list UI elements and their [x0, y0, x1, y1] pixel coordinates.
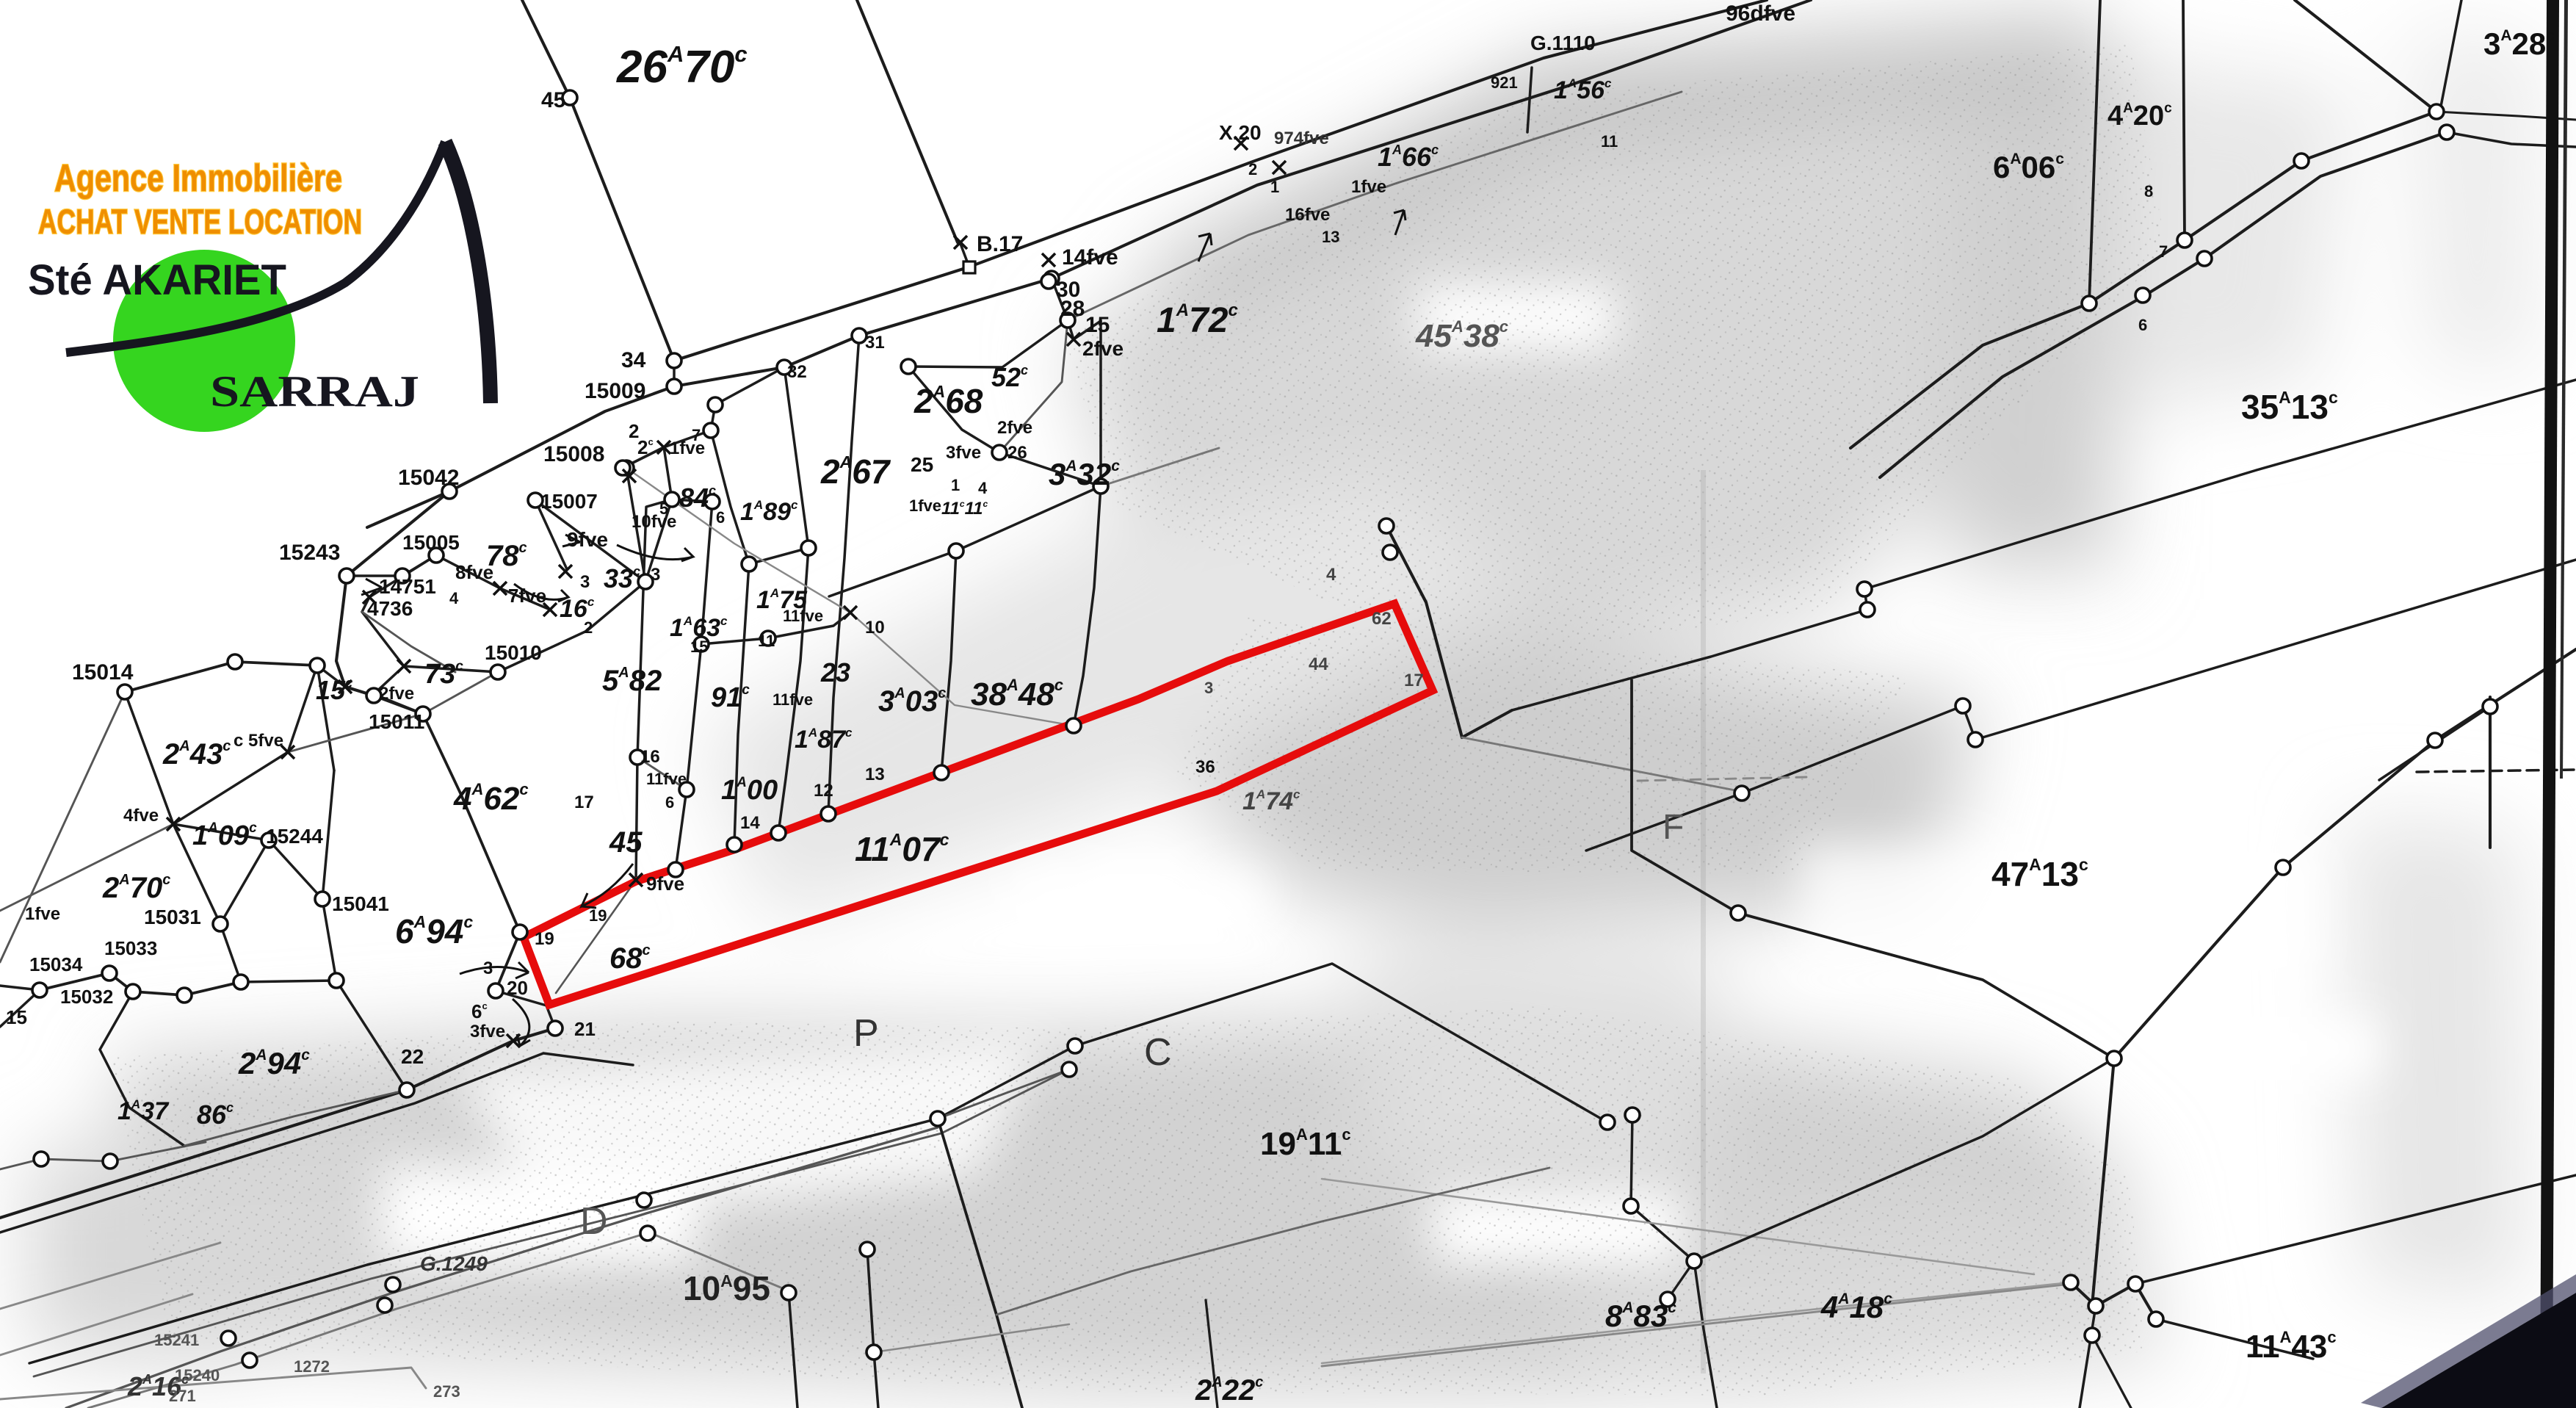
- svg-text:31: 31: [865, 333, 885, 353]
- svg-text:2A70c: 2A70c: [102, 872, 170, 904]
- svg-text:14fve: 14fve: [1062, 245, 1118, 270]
- svg-text:1: 1: [1270, 178, 1279, 196]
- svg-text:1A87c: 1A87c: [795, 726, 853, 754]
- svg-text:2: 2: [584, 618, 593, 637]
- svg-text:15032: 15032: [60, 986, 113, 1008]
- svg-text:2A67: 2A67: [820, 452, 891, 491]
- svg-text:D: D: [580, 1200, 608, 1243]
- svg-text:4736: 4736: [367, 597, 413, 620]
- svg-text:1: 1: [951, 476, 960, 494]
- svg-text:15010: 15010: [485, 641, 542, 664]
- svg-text:23: 23: [820, 657, 850, 687]
- svg-text:26: 26: [1007, 443, 1027, 463]
- svg-text:2A68: 2A68: [913, 382, 983, 420]
- svg-text:4fve: 4fve: [123, 806, 159, 826]
- svg-text:4: 4: [1326, 565, 1336, 585]
- svg-text:15034: 15034: [29, 953, 83, 975]
- svg-text:11: 11: [758, 632, 775, 650]
- svg-text:7: 7: [692, 426, 701, 444]
- svg-text:4: 4: [449, 589, 459, 607]
- svg-text:7fve: 7fve: [508, 585, 546, 607]
- svg-text:7: 7: [2159, 242, 2168, 261]
- svg-text:17: 17: [574, 793, 594, 812]
- svg-text:15007: 15007: [540, 490, 598, 513]
- svg-text:1A89c: 1A89c: [740, 498, 798, 526]
- svg-text:B.17: B.17: [977, 232, 1023, 256]
- svg-text:Agence Immobilière: Agence Immobilière: [54, 157, 342, 200]
- svg-text:9fve: 9fve: [567, 528, 608, 551]
- svg-text:10fve: 10fve: [632, 512, 676, 532]
- svg-text:c 5fve: c 5fve: [234, 731, 283, 751]
- svg-text:2fve: 2fve: [1082, 337, 1124, 360]
- svg-text:45: 45: [541, 88, 565, 112]
- svg-text:22: 22: [401, 1045, 424, 1068]
- svg-text:2A94c: 2A94c: [238, 1046, 310, 1080]
- svg-text:1A72c: 1A72c: [1157, 300, 1238, 340]
- svg-text:28: 28: [1060, 297, 1085, 321]
- svg-text:15240: 15240: [175, 1366, 220, 1384]
- svg-text:15: 15: [690, 638, 708, 656]
- svg-text:921: 921: [1491, 73, 1518, 92]
- svg-text:F: F: [1663, 808, 1684, 847]
- svg-text:16fve: 16fve: [1285, 205, 1330, 225]
- svg-text:3A28c: 3A28c: [2483, 26, 2555, 61]
- svg-text:11A07c: 11A07c: [855, 830, 949, 868]
- svg-text:3A03c: 3A03c: [878, 685, 946, 718]
- svg-text:34: 34: [621, 348, 646, 372]
- svg-text:3: 3: [580, 572, 590, 592]
- svg-text:4A18c: 4A18c: [1820, 1290, 1892, 1324]
- svg-text:974fve: 974fve: [1274, 129, 1329, 148]
- svg-text:3A32c: 3A32c: [1049, 457, 1120, 491]
- svg-text:17: 17: [1404, 671, 1424, 690]
- svg-text:36: 36: [1195, 757, 1215, 777]
- svg-text:15: 15: [1085, 313, 1110, 337]
- svg-text:9fve: 9fve: [646, 873, 684, 895]
- svg-text:8fve: 8fve: [455, 561, 493, 583]
- svg-text:15243: 15243: [279, 541, 340, 565]
- svg-text:6: 6: [2138, 316, 2147, 334]
- svg-text:15031: 15031: [144, 906, 201, 928]
- svg-text:P: P: [853, 1012, 879, 1055]
- svg-text:3: 3: [651, 565, 660, 585]
- svg-text:13: 13: [1322, 228, 1339, 246]
- svg-text:6: 6: [665, 793, 674, 812]
- svg-text:2A43c: 2A43c: [162, 738, 231, 770]
- svg-text:13: 13: [865, 765, 885, 784]
- svg-text:G.1249: G.1249: [420, 1252, 488, 1275]
- svg-text:15008: 15008: [543, 442, 604, 466]
- svg-text:1A09c: 1A09c: [192, 820, 257, 851]
- svg-text:3: 3: [483, 958, 493, 978]
- svg-text:Sté AKARIET: Sté AKARIET: [28, 256, 286, 304]
- svg-text:25: 25: [911, 453, 933, 476]
- svg-text:14751: 14751: [379, 575, 436, 598]
- svg-text:20: 20: [507, 977, 528, 999]
- svg-text:19: 19: [589, 906, 607, 925]
- svg-text:15: 15: [6, 1006, 27, 1028]
- svg-text:2A22c: 2A22c: [1195, 1374, 1263, 1407]
- svg-text:6: 6: [716, 508, 725, 527]
- svg-text:SARRAJ: SARRAJ: [210, 367, 419, 416]
- svg-text:1fve: 1fve: [25, 904, 60, 924]
- svg-text:11: 11: [1601, 132, 1618, 151]
- svg-text:15041: 15041: [332, 892, 389, 915]
- svg-text:16: 16: [640, 747, 660, 767]
- svg-text:2: 2: [1248, 160, 1257, 178]
- svg-text:15042: 15042: [398, 466, 459, 490]
- svg-text:8A83c: 8A83c: [1605, 1299, 1676, 1333]
- svg-text:11fve: 11fve: [783, 607, 823, 625]
- svg-text:2fve: 2fve: [379, 684, 414, 704]
- svg-text:273: 273: [433, 1382, 460, 1401]
- svg-text:3fve: 3fve: [946, 443, 981, 463]
- svg-text:15244: 15244: [266, 825, 323, 848]
- svg-text:1A74c: 1A74c: [1242, 787, 1300, 815]
- svg-text:8: 8: [2144, 182, 2153, 201]
- svg-text:1A37: 1A37: [117, 1097, 170, 1125]
- svg-text:1A00: 1A00: [721, 775, 778, 806]
- svg-text:271: 271: [169, 1387, 196, 1405]
- svg-text:15009: 15009: [585, 379, 645, 403]
- svg-text:10: 10: [865, 618, 885, 638]
- svg-text:15033: 15033: [104, 937, 157, 959]
- svg-text:5A82: 5A82: [602, 665, 662, 697]
- svg-text:14: 14: [740, 813, 760, 833]
- svg-text:3fve: 3fve: [470, 1022, 505, 1041]
- svg-text:C: C: [1144, 1031, 1172, 1074]
- svg-text:19: 19: [535, 929, 554, 949]
- svg-text:15005: 15005: [402, 531, 460, 554]
- svg-text:4A62c: 4A62c: [453, 780, 529, 817]
- svg-text:3: 3: [1204, 679, 1213, 697]
- svg-text:G.1110: G.1110: [1530, 32, 1596, 54]
- svg-text:X.20: X.20: [1219, 121, 1262, 144]
- svg-text:1fve: 1fve: [909, 497, 941, 515]
- svg-text:44: 44: [1309, 654, 1328, 674]
- svg-text:1A66c: 1A66c: [1378, 142, 1439, 172]
- svg-text:11c11c: 11c11c: [941, 499, 988, 519]
- svg-text:21: 21: [574, 1018, 596, 1040]
- svg-text:1A56c: 1A56c: [1554, 76, 1612, 104]
- svg-text:ACHAT VENTE LOCATION: ACHAT VENTE LOCATION: [38, 202, 362, 241]
- svg-text:1fve: 1fve: [1351, 177, 1386, 197]
- svg-text:11fve: 11fve: [773, 690, 813, 709]
- svg-text:45: 45: [609, 826, 643, 859]
- svg-text:1272: 1272: [294, 1357, 330, 1376]
- svg-text:11A43c: 11A43c: [2246, 1328, 2337, 1365]
- svg-text:6A06c: 6A06c: [1993, 150, 2064, 184]
- svg-text:15014: 15014: [72, 660, 134, 685]
- svg-text:15011: 15011: [369, 710, 424, 733]
- svg-text:12: 12: [814, 781, 833, 801]
- svg-text:62: 62: [1372, 609, 1392, 629]
- svg-text:15241: 15241: [154, 1331, 199, 1349]
- svg-text:32: 32: [787, 362, 807, 382]
- svg-text:6A94c: 6A94c: [395, 912, 473, 950]
- svg-text:2fve: 2fve: [997, 418, 1032, 438]
- svg-text:4: 4: [978, 479, 988, 497]
- svg-text:11fve: 11fve: [646, 770, 687, 788]
- svg-text:96dfve: 96dfve: [1726, 1, 1795, 26]
- svg-text:4A20c: 4A20c: [2108, 101, 2172, 131]
